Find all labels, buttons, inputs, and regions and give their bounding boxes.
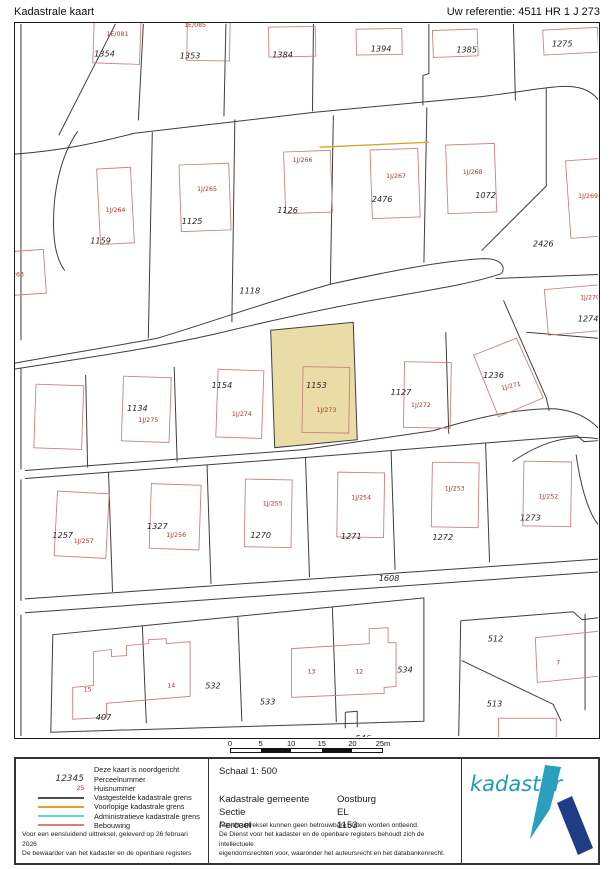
parcel-label: 2426 [533,239,554,249]
building-label: 1J/270 [580,294,598,301]
legal-disclaimer: Aan dit uittreksel kunnen geen betrouwba… [219,821,455,858]
house-number: 7 [556,660,560,667]
building-label: 1J/265 [197,186,217,193]
house-number-symbol: 25 [22,785,94,792]
building-label: 1J/275 [138,417,158,424]
building-label: 1J/272 [411,402,431,409]
scale-bar-segments [230,748,383,753]
field-value: EL [337,807,349,820]
parcel-label: 1273 [520,512,541,522]
parcel-label-highlighted: 1153 [306,380,327,390]
parcel-label: 1385 [456,45,477,55]
scale-tick-label: 5 [259,739,263,748]
scale-tick-label: 0 [228,739,232,748]
building-label: 1J/257 [74,538,94,545]
legend-label: Perceelnummer [94,775,146,784]
scale-tick-label: 20 [348,739,356,748]
parcel-label: 1127 [391,387,413,397]
parcel-label: 1134 [127,403,148,413]
parcel-number-symbol: 12345 [22,774,94,784]
kadaster-logo-mark: kadaster [462,759,599,863]
building-label: 1J/255 [263,500,283,507]
map-scale: Schaal 1: 500 [219,766,453,777]
reference-number: Uw referentie: 4511 HR 1 J 273 [447,6,600,18]
building-label: 1J/263 [15,272,24,279]
parcel-label: 1394 [371,44,392,54]
house-number: 15 [84,686,92,693]
legend-label: Voorlopige kadastrale grens [94,802,184,811]
scale-tick-label: 25m [376,739,391,748]
building-label: 1J/256 [166,532,186,539]
building-label: 1J/267 [386,173,406,180]
parcel-label: 1271 [341,531,362,541]
provisional-boundary [319,142,428,147]
house-number: 12 [355,668,363,675]
parcel-label: 512 [488,634,504,644]
delivery-note: Voor een eensluidend uittreksel, gelever… [22,830,204,849]
building-label: 1J/254 [351,494,371,501]
parcel-label: 1125 [182,216,203,226]
field-label: Sectie [219,807,337,820]
field-value: Oostburg [337,794,376,807]
building-label: 1J/268 [463,169,483,176]
provisional-boundary-swatch [38,806,84,808]
parcel-label: 407 [96,712,112,722]
parcel-label: 1274 [578,313,598,323]
parcel-label: 533 [260,696,276,706]
building-label: 1E/081 [106,31,128,38]
parcel-label: 1154 [212,380,233,390]
cadastral-map: 1354 1353 1384 1394 1385 1275 1159 1125 … [14,22,600,739]
house-number: 14 [167,682,175,689]
parcel-label: 1327 [147,521,169,531]
parcel-label: 1072 [475,190,496,200]
parcel-label: 1353 [180,51,201,61]
parcel-label: 1270 [250,530,271,540]
parcel-label: 1159 [90,236,111,246]
field-label: Kadastrale gemeente [219,794,337,807]
building-label: 1J/264 [106,207,126,214]
parcel-label: 1257 [52,530,74,540]
building-label: 1J/273 [316,407,336,414]
map-canvas: 1354 1353 1384 1394 1385 1275 1159 1125 … [15,23,598,737]
legend-label: Bebouwing [94,821,130,830]
scale-tick-label: 15 [318,739,326,748]
building-label: 1J/271 [501,381,522,393]
north-note: Deze kaart is noordgericht [94,765,179,774]
parcel-label: 1608 [379,573,400,583]
building-label: 1J/252 [538,493,558,500]
logo-bar-shape [557,796,593,855]
kadaster-logo: kadaster [462,759,598,863]
house-number: 13 [307,668,315,675]
building-swatch [38,824,84,826]
parcel-label: 534 [397,664,413,674]
parcel-label: 1354 [94,49,115,59]
parcel-label: 1236 [483,370,504,380]
parcel-label: 1126 [277,205,298,215]
building-label: 1J/253 [445,485,465,492]
keeper-note: De bewaarder van het kadaster en de open… [22,849,204,859]
scale-tick-label: 10 [287,739,295,748]
parcel-label: 1275 [552,39,573,49]
building-label: 1J/274 [232,411,252,418]
legend-label: Vastgestelde kadastrale grens [94,793,192,802]
parcel-label: 513 [487,698,503,708]
info-panel: Deze kaart is noordgericht 12345Perceeln… [14,757,600,865]
building-label: 1J/269 [578,193,598,200]
scale-bar: 0 5 10 15 20 25m [228,739,386,755]
building-label: 1E/085 [184,23,206,29]
parcel-label: 1272 [432,532,453,542]
parcel-label: 1384 [272,50,293,60]
parcel-label: 546 [355,733,371,737]
parcel-label: 2476 [372,194,393,204]
legend: Deze kaart is noordgericht 12345Perceeln… [16,759,209,863]
document-title: Kadastrale kaart [14,6,94,18]
parcel-label: 532 [205,680,221,690]
parcel-label: 1118 [239,285,260,295]
legend-label: Huisnummer [94,784,135,793]
administrative-boundary-swatch [38,815,84,817]
established-boundary-swatch [38,797,84,799]
extract-info: Schaal 1: 500 Kadastrale gemeenteOostbur… [209,759,462,863]
legend-label: Administratieve kadastrale grens [94,812,200,821]
building-label: 1J/266 [293,157,313,164]
